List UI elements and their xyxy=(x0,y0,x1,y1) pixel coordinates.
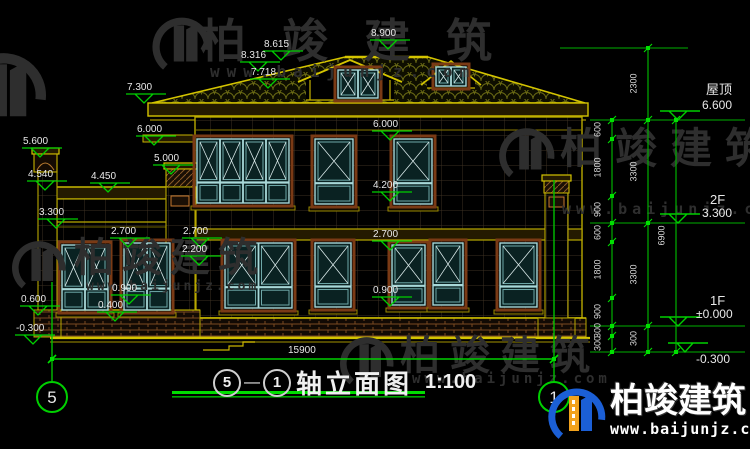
svg-text:5: 5 xyxy=(47,388,56,407)
level-marker-icon xyxy=(372,297,412,306)
level-marker-icon xyxy=(110,238,150,247)
level-marker-icon xyxy=(240,62,280,71)
title-underline xyxy=(172,391,425,398)
level-marker-icon xyxy=(263,51,303,60)
level-marker-icon xyxy=(136,136,176,145)
axis-bubble: 5 xyxy=(37,382,67,412)
level-marker-icon xyxy=(27,181,67,190)
level-marker-icon xyxy=(126,94,166,103)
brand-name: 柏竣建筑 xyxy=(610,384,750,418)
right-level-lines xyxy=(560,48,745,352)
level-marker-icon xyxy=(20,306,60,315)
level-marker-icon xyxy=(181,256,221,265)
level-marker-icon xyxy=(182,238,222,247)
level-marker-icon xyxy=(372,131,412,140)
level-marker-icon xyxy=(370,40,410,49)
brand-url: www.baijunjz.com xyxy=(610,420,750,438)
level-marker-icon xyxy=(372,192,412,201)
level-marker-icon xyxy=(15,335,55,344)
axis-lines xyxy=(52,180,554,381)
level-marker-icon xyxy=(153,165,193,174)
level-marker-icon xyxy=(97,312,137,321)
level-marker-icon xyxy=(90,183,130,192)
level-marker-icon xyxy=(372,241,412,250)
level-marker-icon xyxy=(22,148,62,157)
cad-elevation-screenshot: 柏竣建筑www.baijunjz.com 柏竣建筑www.baijunjz.co… xyxy=(0,0,750,449)
overall-dim-line xyxy=(48,355,558,363)
level-marker-icon xyxy=(38,219,78,228)
level-marker-icon xyxy=(250,79,290,88)
level-marker-icon xyxy=(111,295,151,304)
baijun-logo-icon xyxy=(544,383,608,447)
